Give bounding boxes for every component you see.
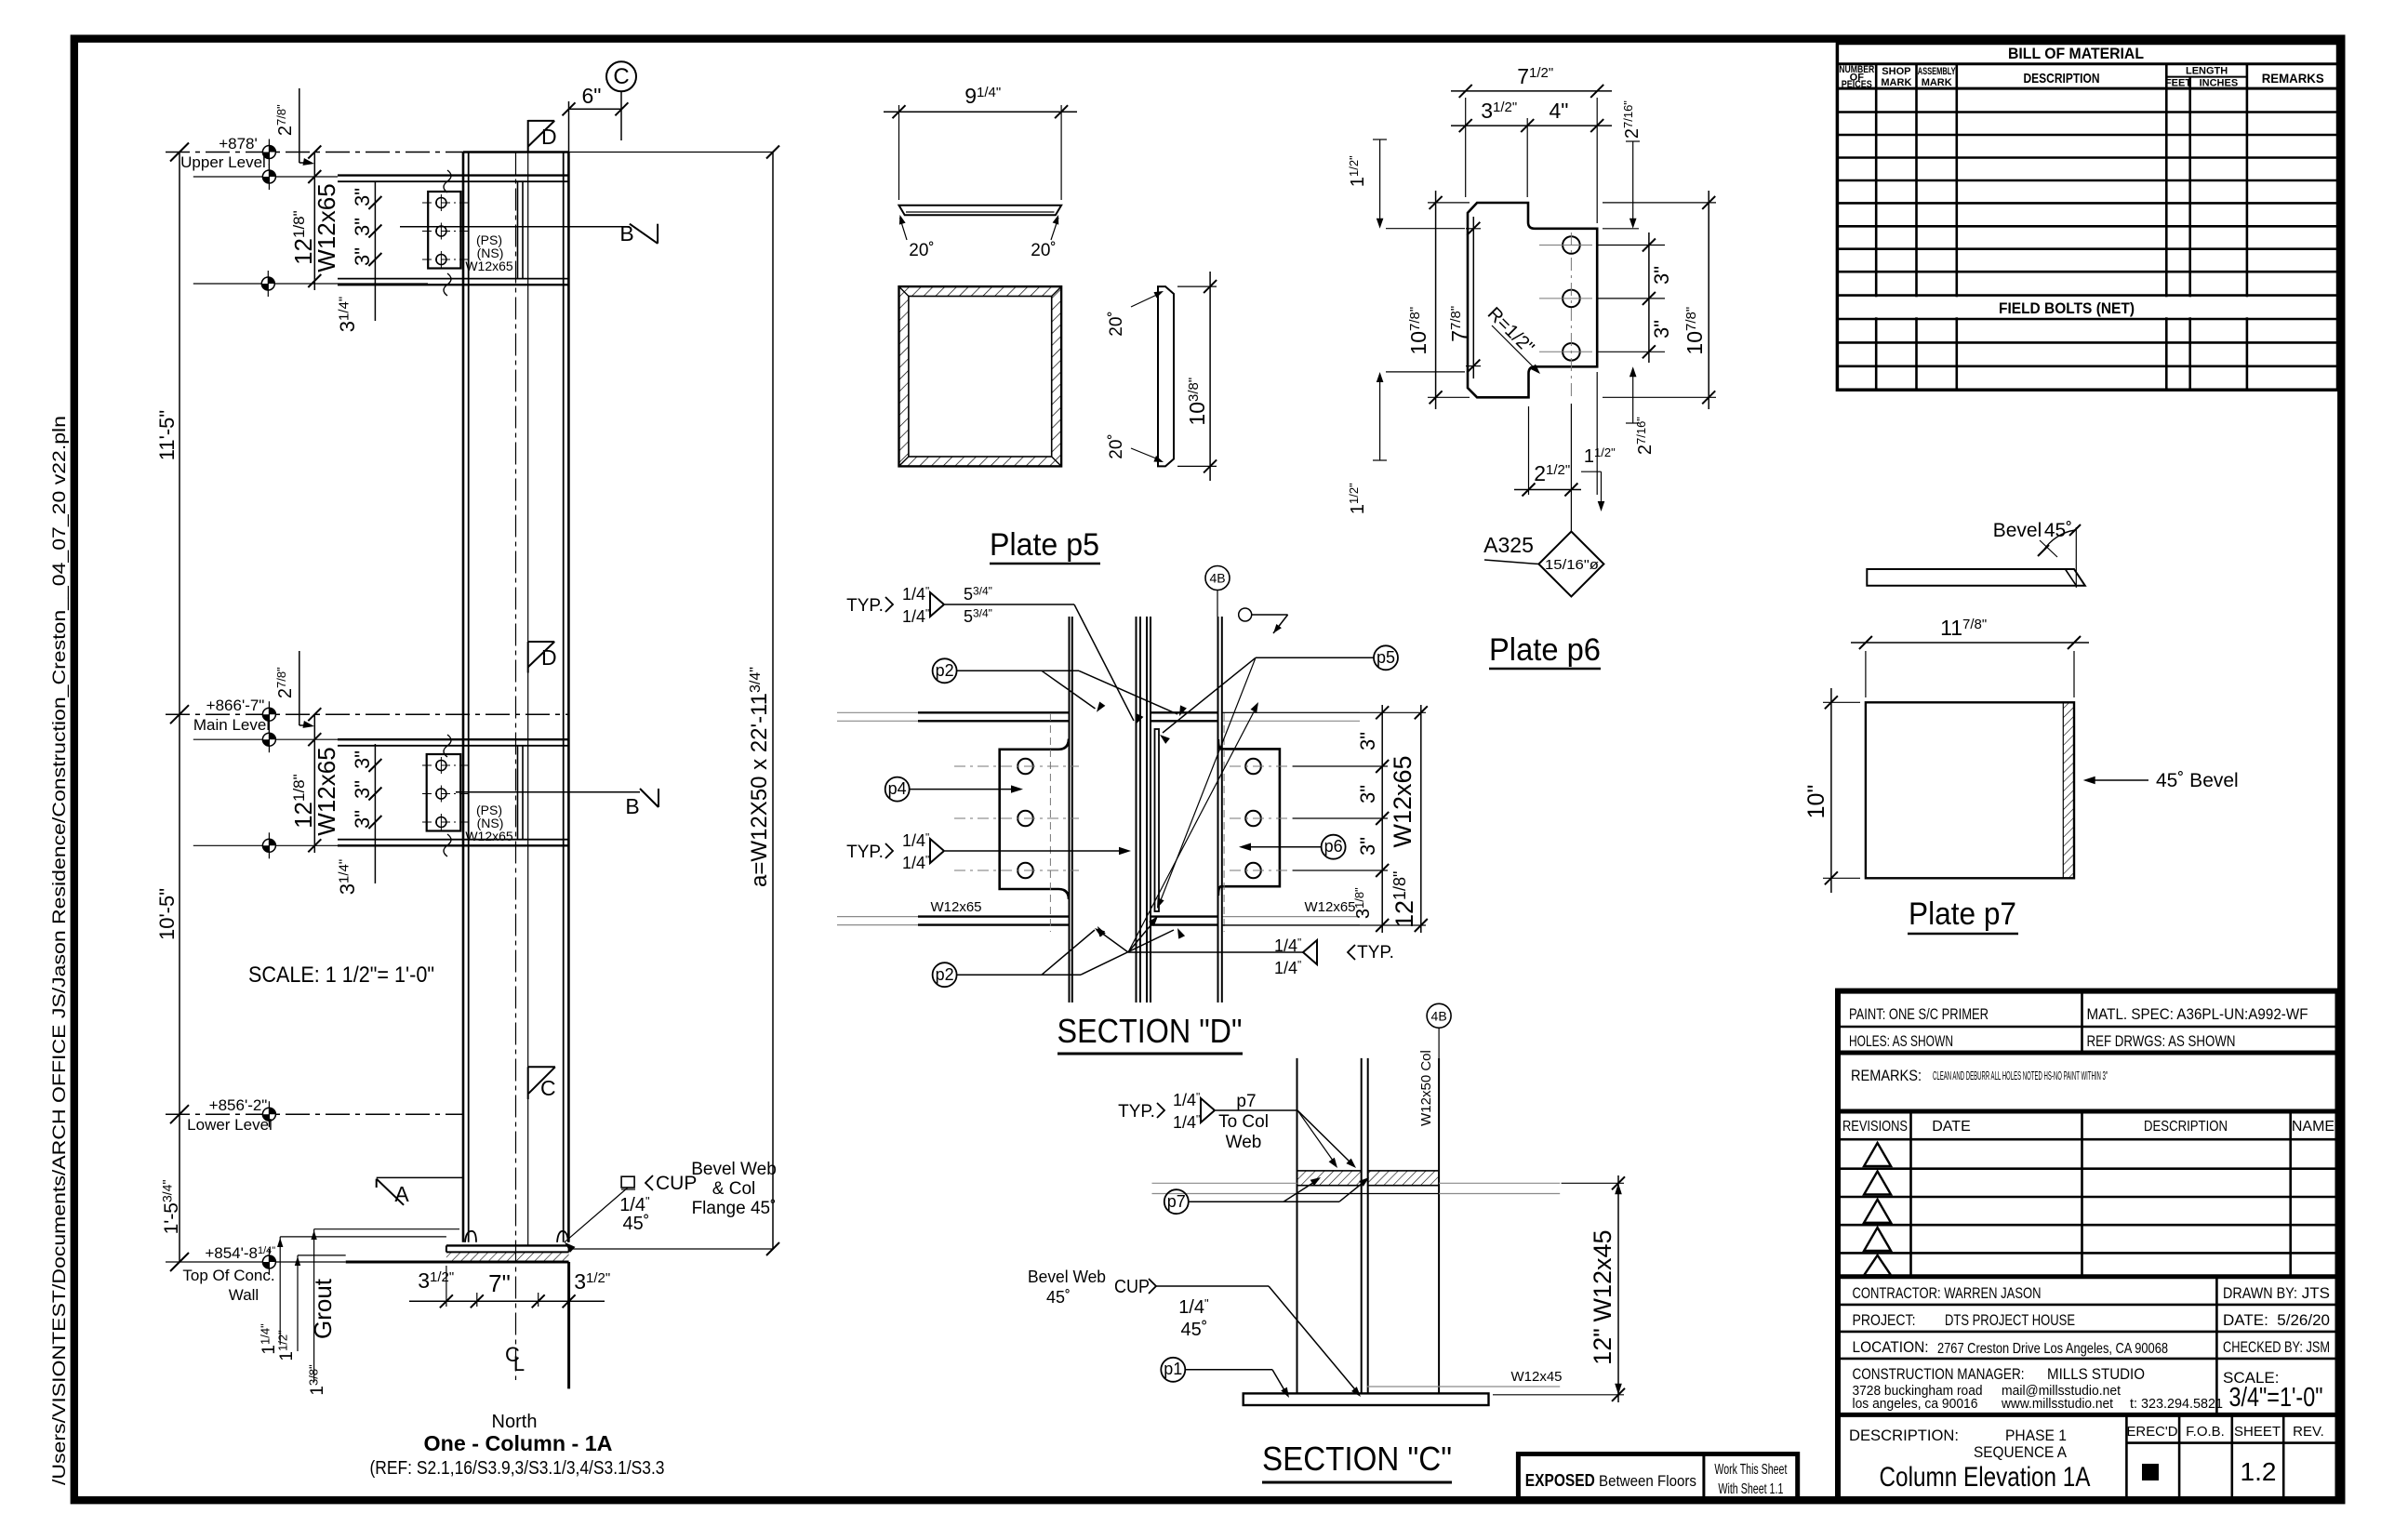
svg-text:7: 7 — [1447, 330, 1471, 342]
svg-text:(REF: S2.1,16/S3.9,3/S3.1/3,4/: (REF: S2.1,16/S3.9,3/S3.1/3,4/S3.1/S3.3 — [370, 1458, 665, 1479]
svg-text:Main Level: Main Level — [193, 716, 270, 734]
svg-text:LENGTH: LENGTH — [2186, 66, 2228, 77]
svg-text:SECTION "D": SECTION "D" — [1057, 1012, 1243, 1050]
svg-text:1/4: 1/4 — [902, 607, 925, 626]
svg-text:W12x65: W12x65 — [1304, 899, 1355, 915]
svg-text:1/2": 1/2" — [1546, 462, 1570, 478]
svg-text:1/2": 1/2" — [275, 1330, 289, 1351]
svg-text:1/2": 1/2" — [1347, 155, 1361, 177]
svg-text:7/8": 7/8" — [1683, 307, 1699, 331]
svg-text:W12x65: W12x65 — [465, 829, 513, 843]
svg-text:3": 3" — [1356, 837, 1379, 856]
svg-text:W12x45: W12x45 — [1589, 1229, 1616, 1321]
svg-text:NAME: NAME — [2292, 1119, 2334, 1135]
svg-text:": " — [645, 1194, 650, 1208]
svg-text:7/16": 7/16" — [1634, 417, 1648, 445]
svg-text:": " — [925, 831, 929, 844]
svg-text:a=W12X50 x 22'-11: a=W12X50 x 22'-11 — [747, 693, 772, 887]
svg-text:EXPOSED: EXPOSED — [1525, 1471, 1595, 1490]
svg-text:PEICES: PEICES — [1842, 79, 1872, 90]
svg-text:F.O.B.: F.O.B. — [2186, 1424, 2225, 1440]
svg-text:Top Of Conc.: Top Of Conc. — [182, 1267, 274, 1284]
svg-text:/Users/VISIONTEST/Documents/AR: /Users/VISIONTEST/Documents/ARCH OFFICE … — [50, 416, 70, 1485]
svg-text:4B: 4B — [1209, 571, 1225, 586]
svg-text:+878': +878' — [219, 135, 258, 153]
svg-text:p7: p7 — [1236, 1092, 1256, 1111]
svg-text:W12x65: W12x65 — [313, 183, 340, 272]
svg-text:1'-5: 1'-5 — [161, 1202, 182, 1234]
svg-text:45˚: 45˚ — [1181, 1320, 1208, 1340]
svg-text:CONTRACTOR: WARREN JASON: CONTRACTOR: WARREN JASON — [1853, 1284, 2042, 1302]
svg-text:SHEET: SHEET — [2234, 1424, 2281, 1440]
svg-text:11: 11 — [1940, 616, 1962, 640]
svg-text:A: A — [394, 1182, 409, 1206]
svg-text:7: 7 — [1517, 64, 1529, 88]
svg-text:REV.: REV. — [2293, 1424, 2324, 1440]
svg-text:10: 10 — [1683, 331, 1707, 355]
svg-text:": " — [925, 854, 929, 867]
svg-text:Column Elevation 1A: Column Elevation 1A — [1880, 1462, 2091, 1493]
svg-text:3/4": 3/4" — [973, 607, 992, 620]
svg-text:5/26/20: 5/26/20 — [2277, 1311, 2330, 1329]
svg-text:20˚: 20˚ — [1107, 311, 1126, 336]
svg-text:Plate p6: Plate p6 — [1489, 632, 1601, 668]
svg-text:1: 1 — [308, 1386, 327, 1396]
svg-text:One - Column - 1A: One - Column - 1A — [424, 1431, 613, 1455]
svg-text:45˚: 45˚ — [1046, 1288, 1071, 1307]
svg-text:BILL OF MATERIAL: BILL OF MATERIAL — [2008, 45, 2144, 62]
svg-text:": " — [1196, 1113, 1200, 1126]
svg-text:L: L — [513, 1352, 525, 1375]
svg-text:B: B — [625, 794, 639, 818]
svg-text:1/2": 1/2" — [430, 1269, 454, 1285]
svg-text:7/8": 7/8" — [1448, 306, 1464, 330]
svg-text:DTS PROJECT HOUSE: DTS PROJECT HOUSE — [1945, 1311, 2075, 1329]
svg-text:1/8": 1/8" — [290, 210, 308, 238]
svg-text:W12x50 Col: W12x50 Col — [1418, 1050, 1434, 1126]
svg-text:": " — [1196, 1091, 1200, 1104]
svg-text:DATE:: DATE: — [2223, 1311, 2268, 1329]
svg-text:PAINT: ONE S/C PRIMER: PAINT: ONE S/C PRIMER — [1849, 1005, 1989, 1023]
svg-text:3/4": 3/4" — [973, 585, 992, 598]
svg-text:1/4": 1/4" — [336, 297, 352, 321]
svg-text:10: 10 — [1185, 402, 1209, 426]
svg-text:FEET: FEET — [2165, 78, 2191, 89]
svg-text:DATE: DATE — [1932, 1119, 1970, 1135]
svg-text:1/8": 1/8" — [290, 774, 308, 802]
svg-text:SHOP: SHOP — [1882, 66, 1910, 77]
svg-text:p2: p2 — [936, 965, 954, 984]
svg-text:t: 323.294.5821: t: 323.294.5821 — [2130, 1396, 2223, 1412]
svg-text:PROJECT:: PROJECT: — [1853, 1311, 1916, 1329]
svg-text:3": 3" — [1650, 320, 1673, 339]
svg-text:INCHES: INCHES — [2200, 78, 2239, 89]
svg-text:10: 10 — [1406, 331, 1430, 355]
svg-text:4B: 4B — [1431, 1009, 1447, 1024]
svg-text:1/4: 1/4 — [902, 585, 925, 604]
svg-text:11'-5": 11'-5" — [155, 410, 179, 460]
svg-text:5: 5 — [964, 585, 973, 604]
svg-text:Plate p5: Plate p5 — [990, 527, 1099, 563]
svg-text:3: 3 — [418, 1268, 430, 1293]
svg-text:p7: p7 — [1167, 1192, 1186, 1211]
svg-text:1/4": 1/4" — [258, 1245, 275, 1256]
svg-text:ASSEMBLY: ASSEMBLY — [1918, 66, 1956, 77]
svg-text:3": 3" — [1356, 785, 1379, 803]
svg-text:C: C — [613, 64, 629, 89]
svg-text:REMARKS:: REMARKS: — [1851, 1067, 1922, 1084]
svg-text:p5: p5 — [1377, 648, 1395, 667]
svg-text:Web: Web — [1226, 1133, 1262, 1152]
svg-text:1/4: 1/4 — [1274, 959, 1297, 977]
svg-text:45˚ Bevel: 45˚ Bevel — [2156, 770, 2239, 791]
svg-text:3: 3 — [336, 883, 359, 895]
svg-text:6": 6" — [582, 84, 602, 108]
svg-text:": " — [925, 585, 929, 598]
svg-text:D: D — [541, 645, 557, 670]
svg-text:MATL. SPEC: A36PL-UN:A992-WF: MATL. SPEC: A36PL-UN:A992-WF — [2087, 1005, 2308, 1023]
svg-text:1: 1 — [1348, 177, 1368, 187]
svg-text:MILLS STUDIO: MILLS STUDIO — [2047, 1365, 2145, 1383]
svg-text:7": 7" — [488, 1269, 511, 1297]
svg-text:+866'-7": +866'-7" — [206, 697, 265, 714]
svg-text:20˚: 20˚ — [909, 241, 934, 260]
svg-text:1/4: 1/4 — [1178, 1297, 1204, 1318]
svg-text:7/8": 7/8" — [1962, 617, 1987, 632]
svg-text:1/2": 1/2" — [1347, 483, 1361, 504]
svg-text:A325: A325 — [1483, 533, 1534, 557]
svg-text:Plate p7: Plate p7 — [1909, 896, 2016, 932]
svg-text:TYP.: TYP. — [846, 596, 884, 616]
svg-text:5: 5 — [964, 607, 973, 626]
svg-text:1/4: 1/4 — [902, 831, 925, 850]
svg-text:With Sheet 1.1: With Sheet 1.1 — [1718, 1481, 1783, 1497]
svg-text:1.2: 1.2 — [2241, 1457, 2277, 1486]
svg-text:CONSTRUCTION MANAGER:: CONSTRUCTION MANAGER: — [1853, 1365, 2025, 1383]
svg-text:1/4": 1/4" — [977, 85, 1001, 100]
svg-text:los angeles, ca 90016: los angeles, ca 90016 — [1853, 1396, 1978, 1412]
svg-text:Upper Level: Upper Level — [180, 153, 266, 171]
svg-text:2: 2 — [1635, 445, 1656, 455]
svg-text:TYP.: TYP. — [846, 843, 884, 862]
svg-text:": " — [1297, 959, 1301, 972]
svg-text:45˚: 45˚ — [623, 1214, 650, 1234]
svg-text:1/4: 1/4 — [1173, 1091, 1196, 1109]
svg-text:p4: p4 — [888, 779, 907, 798]
svg-text:DESCRIPTION: DESCRIPTION — [2024, 71, 2100, 86]
svg-text:10": 10" — [1803, 785, 1829, 819]
svg-text:C: C — [540, 1076, 556, 1100]
svg-text:+854'-8: +854'-8 — [205, 1244, 258, 1262]
svg-text:Grout: Grout — [309, 1278, 337, 1339]
svg-text:www.millsstudio.net: www.millsstudio.net — [2001, 1396, 2114, 1412]
svg-text:7/8": 7/8" — [274, 667, 288, 688]
svg-text:& Col: & Col — [712, 1179, 755, 1199]
svg-text:3": 3" — [351, 780, 374, 799]
svg-text:1/2": 1/2" — [1529, 65, 1553, 81]
svg-text:1/4: 1/4 — [902, 854, 925, 872]
svg-text:3/8": 3/8" — [306, 1364, 320, 1386]
svg-text:3": 3" — [351, 750, 374, 769]
svg-text:p1: p1 — [1164, 1360, 1182, 1378]
svg-text:MARK: MARK — [1881, 77, 1911, 88]
svg-text:15/16"ø: 15/16"ø — [1545, 557, 1599, 573]
svg-text:REMARKS: REMARKS — [2262, 71, 2324, 86]
svg-text:12: 12 — [1390, 900, 1418, 928]
svg-text:CHECKED BY: JSM: CHECKED BY: JSM — [2223, 1338, 2330, 1356]
svg-text:Lower Level: Lower Level — [187, 1116, 273, 1134]
svg-text:W12x45: W12x45 — [1510, 1369, 1562, 1385]
svg-text:1/8": 1/8" — [1390, 871, 1409, 900]
svg-text:Bevel: Bevel — [1993, 520, 2042, 541]
svg-text:3: 3 — [574, 1269, 586, 1294]
svg-text:7/16": 7/16" — [1621, 100, 1635, 128]
svg-text:1: 1 — [1584, 446, 1594, 467]
svg-text:DRAWN BY:: DRAWN BY: — [2223, 1284, 2297, 1302]
svg-text:Wall: Wall — [229, 1286, 259, 1304]
svg-text:Flange 45˚: Flange 45˚ — [692, 1199, 777, 1218]
svg-text:12": 12" — [1589, 1328, 1616, 1365]
svg-text:10'-5": 10'-5" — [155, 888, 179, 940]
svg-text:EREC'D: EREC'D — [2127, 1424, 2178, 1440]
svg-text:p2: p2 — [936, 661, 954, 680]
svg-text:3": 3" — [351, 247, 374, 266]
svg-text:4": 4" — [1550, 99, 1569, 123]
svg-text:3: 3 — [1353, 909, 1374, 919]
svg-text:SCALE: 1 1/2"= 1'-0": SCALE: 1 1/2"= 1'-0" — [248, 962, 434, 988]
svg-text:MARK: MARK — [1922, 77, 1952, 88]
svg-text:1/2": 1/2" — [1493, 100, 1517, 115]
svg-text:Bevel Web: Bevel Web — [1028, 1268, 1106, 1286]
svg-text:3/4": 3/4" — [748, 667, 764, 693]
svg-text:REF DRWGS: AS SHOWN: REF DRWGS: AS SHOWN — [2087, 1032, 2236, 1050]
svg-text:North: North — [492, 1412, 538, 1432]
svg-text:9: 9 — [964, 84, 977, 108]
svg-text:JTS: JTS — [2302, 1284, 2330, 1302]
svg-text:3": 3" — [351, 188, 374, 206]
svg-text:W12x65: W12x65 — [465, 259, 513, 273]
svg-text:45˚: 45˚ — [2044, 520, 2072, 541]
svg-text:": " — [1297, 936, 1301, 949]
svg-text:CUP: CUP — [1114, 1277, 1150, 1297]
svg-text:20˚: 20˚ — [1031, 241, 1056, 260]
svg-text:1/8": 1/8" — [1352, 887, 1366, 909]
svg-text:2: 2 — [1622, 128, 1643, 139]
svg-text:1/2": 1/2" — [586, 1270, 610, 1286]
svg-text:7/8": 7/8" — [1407, 307, 1423, 331]
svg-text:p6: p6 — [1324, 837, 1343, 856]
svg-text:SECTION "C": SECTION "C" — [1262, 1440, 1452, 1478]
svg-text:3": 3" — [1650, 266, 1673, 285]
svg-text:3/4": 3/4" — [160, 1180, 175, 1202]
svg-text:Between Floors: Between Floors — [1599, 1472, 1696, 1490]
svg-text:DESCRIPTION: DESCRIPTION — [2144, 1119, 2228, 1135]
svg-text:1/4": 1/4" — [258, 1323, 272, 1345]
svg-text:+856'-2": +856'-2" — [209, 1096, 268, 1114]
svg-text:3": 3" — [1356, 732, 1379, 750]
svg-text:W12x65: W12x65 — [313, 747, 340, 835]
svg-text:W12x65: W12x65 — [930, 899, 981, 915]
svg-text:CLEAN AND DEBURR ALL HOLES NOT: CLEAN AND DEBURR ALL HOLES NOTED HS-NO P… — [1933, 1069, 2108, 1082]
svg-text:3/4"=1'-0": 3/4"=1'-0" — [2229, 1383, 2323, 1413]
svg-text:3: 3 — [1481, 99, 1493, 123]
svg-text:B: B — [619, 221, 633, 246]
svg-text:2: 2 — [275, 126, 296, 136]
svg-text:3": 3" — [351, 810, 374, 829]
svg-text:20˚: 20˚ — [1107, 433, 1126, 458]
svg-text:2767 Creston Drive Los Angele: 2767 Creston Drive Los Angeles, CA 90068 — [1937, 1341, 2168, 1357]
svg-text:LOCATION:: LOCATION: — [1853, 1338, 1929, 1356]
svg-text:W12x65: W12x65 — [1389, 755, 1417, 847]
svg-text:DESCRIPTION:: DESCRIPTION: — [1849, 1427, 1959, 1444]
svg-text:2: 2 — [1534, 461, 1546, 485]
svg-text:FIELD BOLTS (NET): FIELD BOLTS (NET) — [1999, 299, 2135, 317]
svg-text:1/4: 1/4 — [1173, 1113, 1196, 1132]
svg-text:REVISIONS: REVISIONS — [1842, 1119, 1908, 1135]
svg-text:Bevel Web: Bevel Web — [691, 1160, 777, 1179]
svg-text:PHASE 1: PHASE 1 — [2005, 1427, 2067, 1444]
svg-text:2: 2 — [275, 688, 296, 698]
svg-text:SEQUENCE A: SEQUENCE A — [1974, 1443, 2068, 1461]
svg-text:": " — [1204, 1296, 1209, 1310]
svg-text:1: 1 — [1348, 504, 1368, 514]
svg-text:TYP.: TYP. — [1357, 943, 1394, 962]
svg-text:1/4: 1/4 — [619, 1195, 645, 1215]
svg-text:Work This Sheet: Work This Sheet — [1714, 1462, 1787, 1478]
svg-text:1/4": 1/4" — [336, 859, 352, 883]
svg-text:3/8": 3/8" — [1186, 378, 1202, 402]
svg-text:3: 3 — [336, 321, 359, 332]
svg-text:3": 3" — [351, 218, 374, 236]
svg-text:HOLES: AS SHOWN: HOLES: AS SHOWN — [1849, 1032, 1953, 1050]
svg-text:7/8": 7/8" — [274, 104, 288, 126]
svg-text:D: D — [541, 125, 557, 149]
svg-text:To Col: To Col — [1218, 1112, 1269, 1132]
svg-text:1: 1 — [277, 1351, 297, 1361]
svg-text:": " — [925, 607, 929, 620]
svg-text:TYP.: TYP. — [1118, 1102, 1155, 1122]
